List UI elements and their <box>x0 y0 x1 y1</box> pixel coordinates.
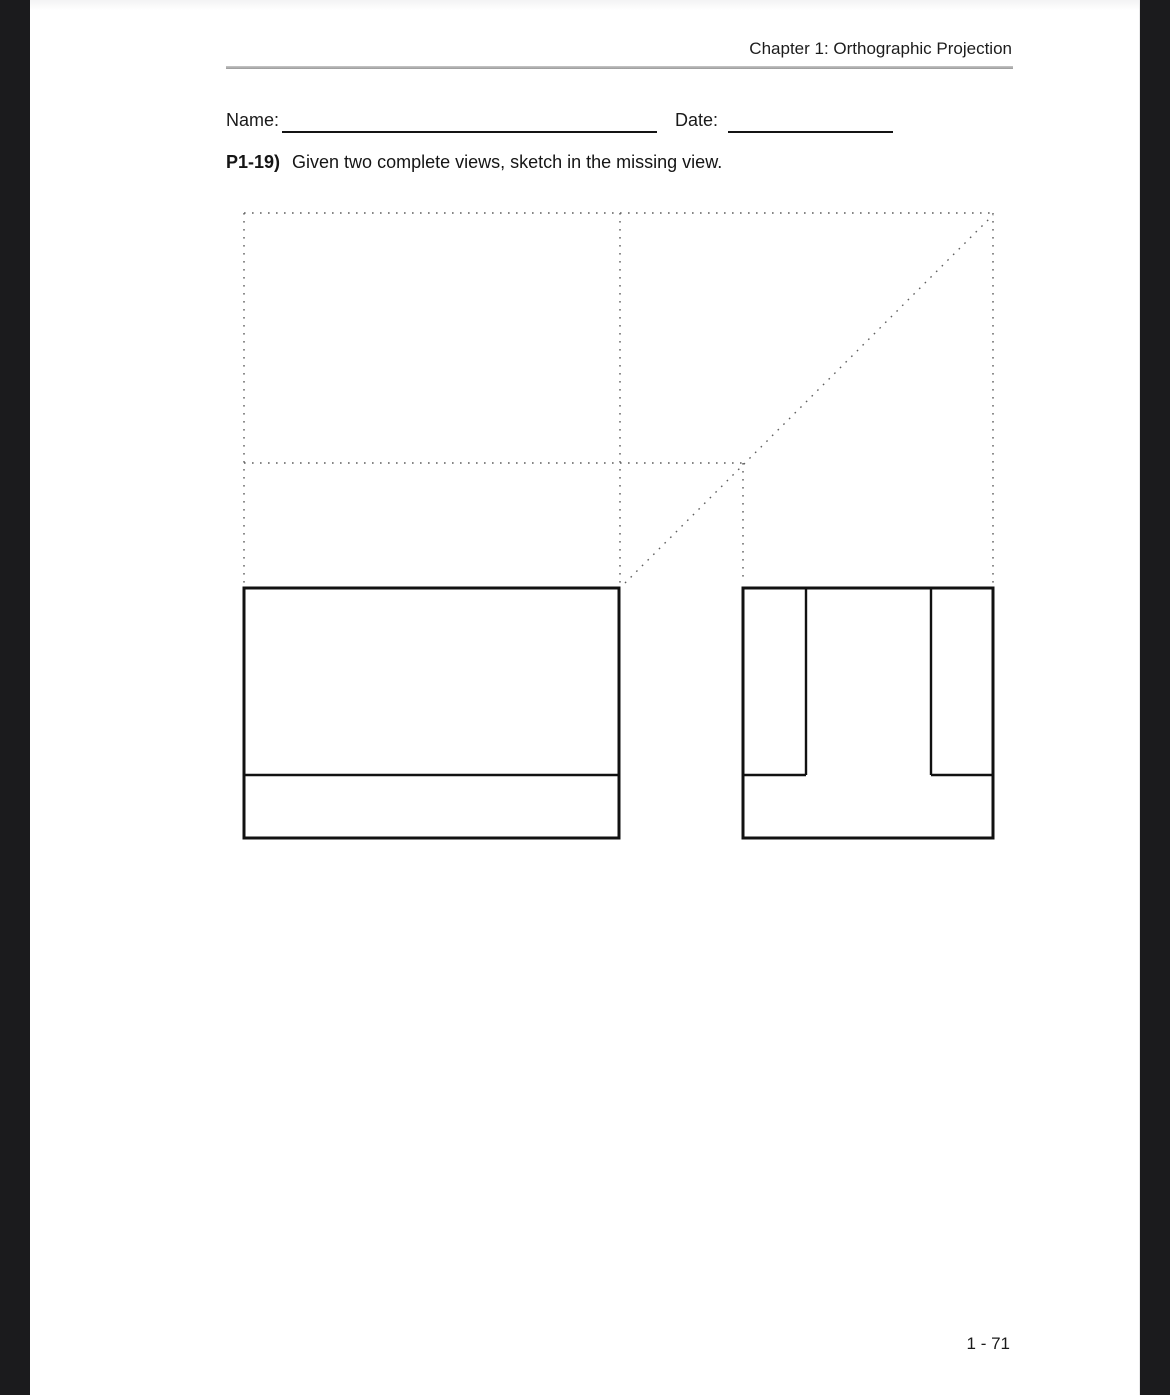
page-number: 1 - 71 <box>967 1334 1010 1354</box>
view-outline <box>743 588 993 838</box>
viewer-background: Chapter 1: Orthographic Projection Name:… <box>0 0 1170 1395</box>
document-page: Chapter 1: Orthographic Projection Name:… <box>30 0 1140 1395</box>
view-outline <box>244 588 619 838</box>
projection-guide-line <box>625 215 993 583</box>
orthographic-projection-drawing <box>30 0 1140 1395</box>
